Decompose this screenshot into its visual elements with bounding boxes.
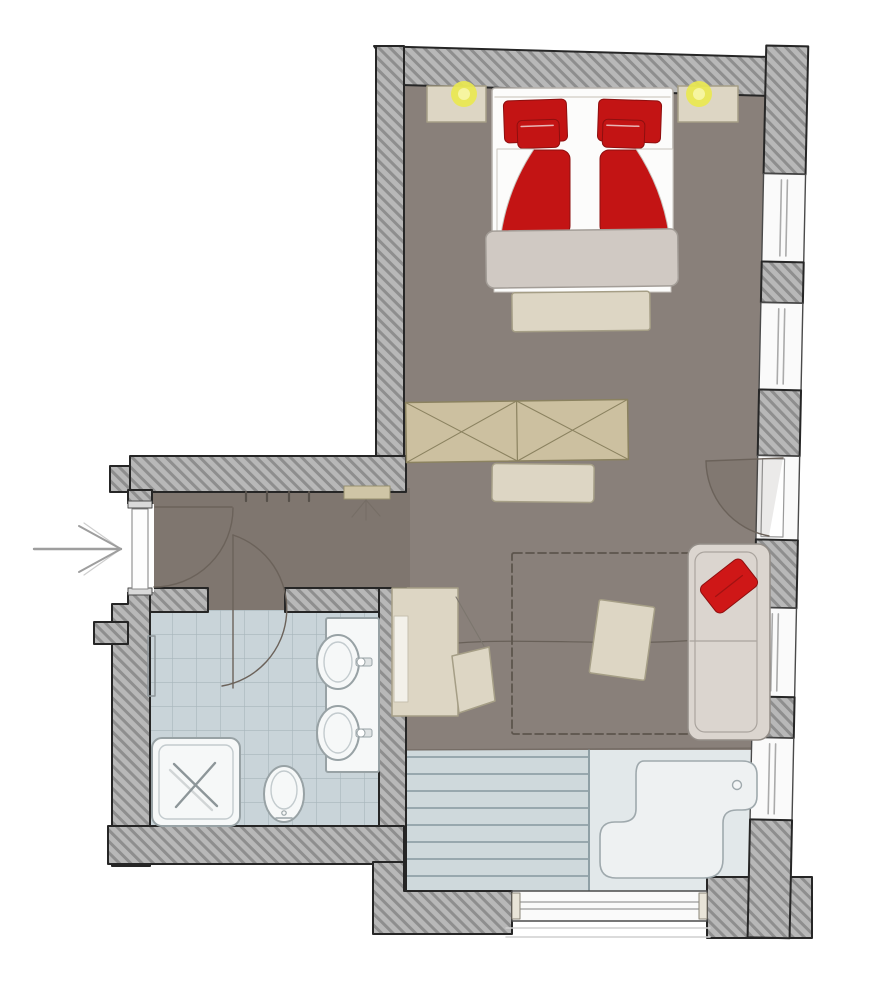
tub-drain: [733, 781, 742, 790]
desk-pad: [394, 616, 408, 702]
panorama-window: [506, 891, 710, 937]
duvet-right: [600, 149, 673, 235]
double-bed: [486, 88, 679, 292]
pillows-left: [503, 99, 568, 149]
entry-frame-top: [128, 501, 152, 508]
side-table: [589, 599, 655, 680]
pillows-right: [597, 99, 662, 149]
right-wall-pier-1: [761, 261, 804, 303]
right-wall-corner-pier: [764, 46, 809, 175]
entry-door-leaf: [132, 509, 148, 589]
west-wall-stub: [94, 622, 128, 644]
entry-arrow: [34, 523, 121, 575]
bath-top-wall-left: [150, 588, 208, 612]
toilet: [264, 766, 304, 822]
floor-plan-canvas: [0, 0, 879, 1000]
window-2: [759, 302, 803, 390]
wardrobe: [406, 399, 629, 462]
right-wall-bottom-pier: [748, 819, 792, 938]
window-cap-left: [512, 893, 520, 919]
wall-shelf: [344, 486, 390, 499]
bath-bottom-wall: [108, 826, 404, 864]
foot-blanket: [486, 229, 679, 288]
shower: [152, 738, 240, 826]
window-1: [762, 174, 806, 263]
bedside-lamp-right: [686, 81, 712, 107]
desk-chair: [452, 647, 495, 713]
floor-plan-page: [0, 0, 879, 1000]
sofa: [688, 544, 770, 740]
window-cap-right: [699, 893, 707, 919]
duvet-left: [497, 149, 570, 235]
bedside-lamp-left: [451, 81, 477, 107]
bench: [512, 291, 650, 331]
right-wall-pier-2: [758, 389, 801, 456]
terrace-deck: [404, 750, 589, 891]
sideboard: [492, 463, 594, 502]
bedroom-left-wall: [376, 46, 404, 466]
